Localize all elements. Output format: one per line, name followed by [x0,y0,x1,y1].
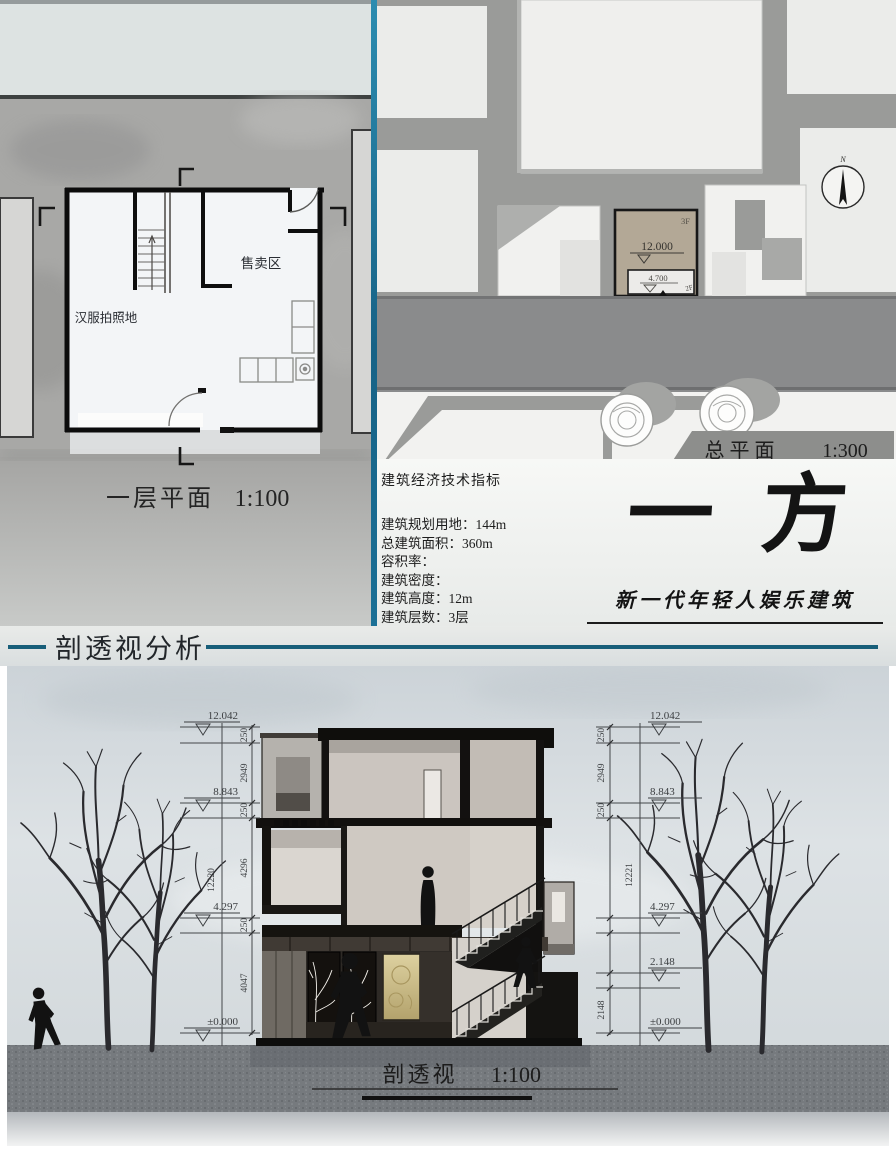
site-project-building: 3F 12.000 4.700 2F [615,210,697,296]
neighbor-block-left [0,198,33,437]
room-label-hanfu: 汉服拍照地 [75,310,138,325]
dim-segment: 250 [240,803,250,818]
floor-plan-caption: 一层平面 [106,486,214,512]
project-subtitle: 新一代年轻人娱乐建筑 [587,584,883,624]
dim-segment: 250 [597,728,607,743]
section-caption-scale: 1:100 [491,1062,541,1087]
room-label-sales: 售卖区 [241,256,282,271]
gold-panel [383,954,420,1020]
elevation-label: ±0.000 [650,1016,681,1028]
dim-segment: 250 [597,803,607,818]
site-elev-top-label: 12.000 [641,241,673,253]
project-title: 一方 [582,470,893,560]
elevation-label: 4.297 [213,901,238,913]
indicator-row: 建筑规划用地：144m [381,516,617,535]
section-heading: 剖透视分析 [55,627,205,666]
dim-segment: 250 [240,918,250,933]
technical-indicators: 建筑经济技术指标 建筑规划用地：144m 总建筑面积：360m 容积率： 建筑密… [377,462,617,632]
indicator-row: 建筑密度： [381,572,617,591]
dim-overall: 12220 [207,868,217,892]
heading-dash [8,645,46,649]
indicators-title: 建筑经济技术指标 [381,470,617,490]
presentation-board: 售卖区 汉服拍照地 一层平面 1:100 [0,0,896,1158]
site-street [377,296,896,392]
section-heading-band: 剖透视分析 [0,626,896,666]
elevation-label: 2.148 [650,956,675,968]
section-perspective-panel: 12.042 8.843 4.297 ±0.000 250 2949 250 4… [0,666,896,1158]
heading-rule [206,645,878,649]
neighbor-block-right [352,130,372,433]
plan-sky-band [0,0,372,97]
indicator-row: 建筑层数：3层 [381,609,617,628]
elevation-label: 4.297 [650,901,675,913]
dim-segment: 4296 [240,858,250,877]
floor-plan-scale: 1:100 [235,486,290,512]
elevation-label: 8.843 [650,786,675,798]
elevation-label: 12.042 [650,710,680,722]
dim-segment: 250 [240,728,250,743]
dim-segment: 4047 [240,973,250,992]
site-plan-panel: 3F 12.000 4.700 2F 入口 N [377,0,896,470]
elevation-label: ±0.000 [207,1016,238,1028]
north-label: N [839,155,846,164]
elevation-label: 12.042 [208,710,238,722]
dim-segment: 2148 [597,1000,607,1019]
branding-block: 一方 新一代年轻人娱乐建筑 [585,462,890,630]
dim-overall: 12221 [625,863,635,887]
building-section [256,728,582,1046]
indicator-row: 建筑高度：12m [381,590,617,609]
indicators-list: 建筑规划用地：144m 总建筑面积：360m 容积率： 建筑密度： 建筑高度：1… [381,516,617,627]
floor-plan-panel: 售卖区 汉服拍照地 一层平面 1:100 [0,0,372,632]
section-caption-text: 剖透视 [382,1062,457,1087]
dim-segment: 2949 [597,763,607,782]
site-elev-entry-label: 4.700 [648,273,667,283]
dim-segment: 2949 [240,763,250,782]
site-floors-top-label: 3F [681,216,690,226]
elevation-label: 8.843 [213,786,238,798]
